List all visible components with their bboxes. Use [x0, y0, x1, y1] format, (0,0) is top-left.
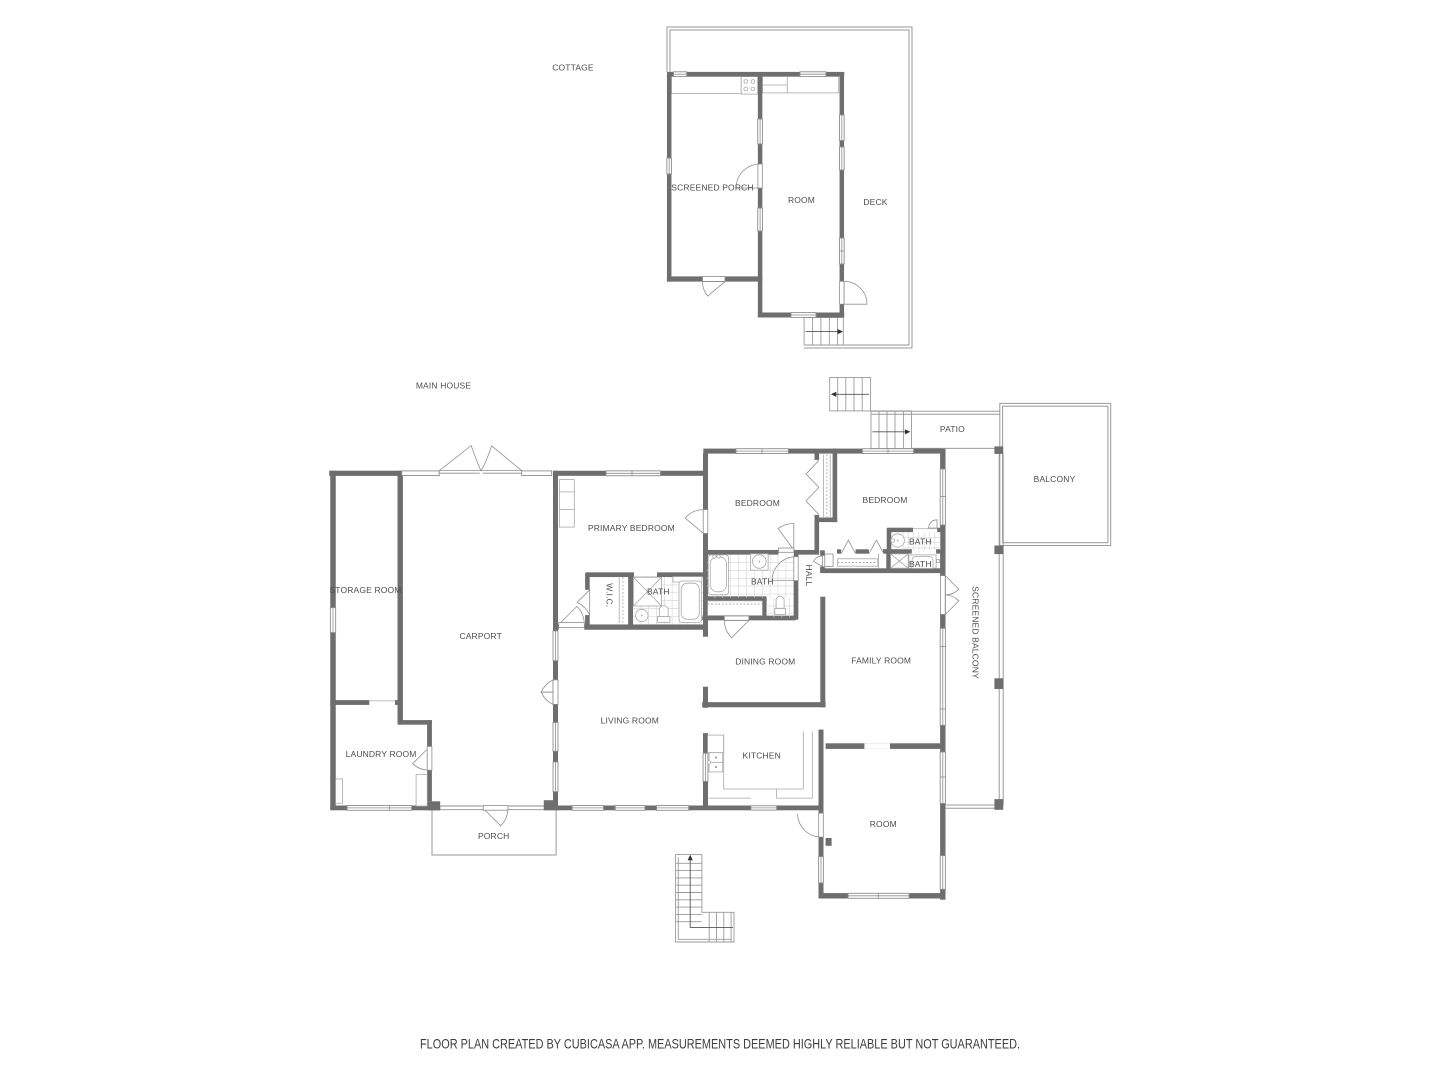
svg-text:BATH: BATH	[647, 587, 670, 597]
svg-text:DECK: DECK	[863, 197, 887, 207]
svg-text:STORAGE ROOM: STORAGE ROOM	[329, 585, 401, 595]
svg-text:HALL: HALL	[804, 565, 814, 587]
svg-text:COTTAGE: COTTAGE	[552, 63, 594, 73]
svg-text:BATH: BATH	[751, 576, 774, 586]
svg-text:PORCH: PORCH	[478, 831, 509, 841]
svg-text:ROOM: ROOM	[870, 819, 897, 829]
svg-text:MAIN HOUSE: MAIN HOUSE	[416, 381, 472, 391]
svg-text:W.I.C.: W.I.C.	[605, 583, 615, 607]
svg-text:BATH: BATH	[909, 537, 932, 547]
svg-text:KITCHEN: KITCHEN	[743, 750, 781, 760]
svg-text:FLOOR PLAN CREATED BY CUBICASA: FLOOR PLAN CREATED BY CUBICASA APP. MEAS…	[420, 1037, 1020, 1052]
svg-text:DINING ROOM: DINING ROOM	[735, 656, 795, 666]
svg-text:PRIMARY BEDROOM: PRIMARY BEDROOM	[588, 523, 675, 533]
svg-text:BATH: BATH	[909, 559, 932, 569]
svg-text:LIVING ROOM: LIVING ROOM	[601, 715, 659, 725]
svg-text:BEDROOM: BEDROOM	[735, 498, 780, 508]
svg-text:BEDROOM: BEDROOM	[863, 495, 908, 505]
svg-text:ROOM: ROOM	[788, 195, 815, 205]
svg-text:PATIO: PATIO	[940, 424, 965, 434]
svg-text:FAMILY ROOM: FAMILY ROOM	[851, 655, 911, 665]
svg-text:LAUNDRY ROOM: LAUNDRY ROOM	[346, 749, 417, 759]
svg-text:BALCONY: BALCONY	[1034, 474, 1076, 484]
svg-text:SCREENED PORCH: SCREENED PORCH	[671, 183, 753, 193]
svg-text:SCREENED BALCONY: SCREENED BALCONY	[970, 586, 980, 679]
svg-text:CARPORT: CARPORT	[459, 631, 501, 641]
